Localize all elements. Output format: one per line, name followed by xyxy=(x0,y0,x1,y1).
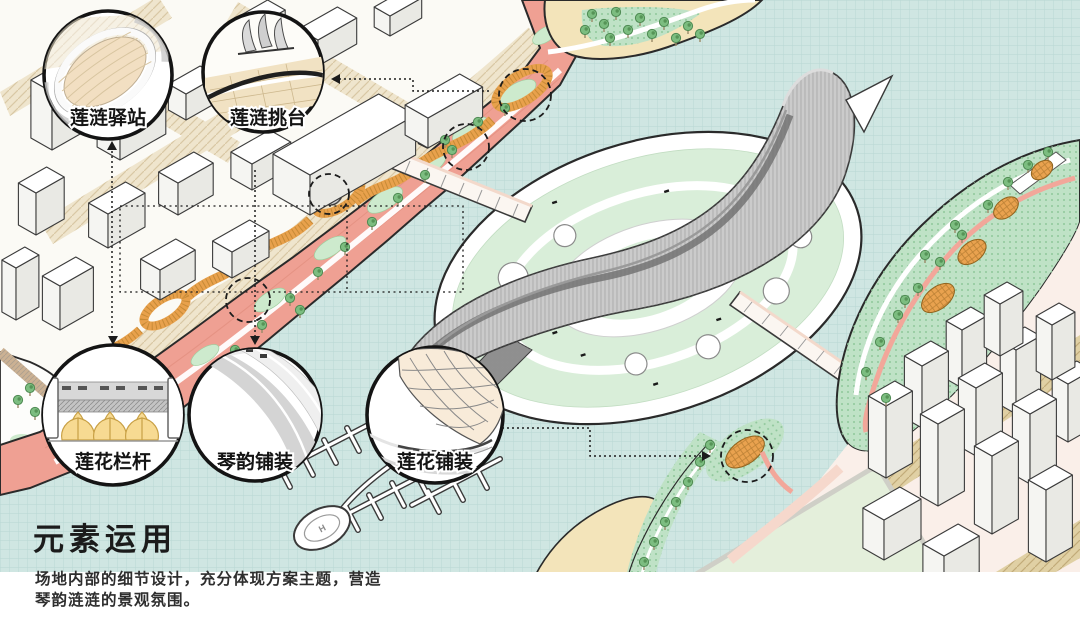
section-title: 元素运用 xyxy=(33,514,177,559)
lotus-flowers xyxy=(62,412,159,440)
callout-label-lotus-paving: 莲花铺装 xyxy=(397,450,473,473)
description-line-2: 琴韵涟涟的景观氛围。 xyxy=(35,590,382,611)
callout-label-railing: 莲花栏杆 xyxy=(75,450,151,473)
description-line-1: 场地内部的细节设计，充分体现方案主题，营造 xyxy=(35,569,382,590)
site-plan-page: H xyxy=(0,0,1080,619)
callout-lotus-railing: 莲花栏杆 xyxy=(40,345,186,485)
callout-lotus-ripple-platform: 莲涟挑台 xyxy=(203,12,326,132)
callout-label-qin-paving: 琴韵铺装 xyxy=(216,450,293,473)
callout-label-station: 莲涟驿站 xyxy=(70,106,146,129)
callout-label-platform: 莲涟挑台 xyxy=(230,106,306,129)
callout-lotus-paving: 莲花铺装 xyxy=(367,347,506,483)
section-description: 场地内部的细节设计，充分体现方案主题，营造 琴韵涟涟的景观氛围。 xyxy=(35,569,382,611)
